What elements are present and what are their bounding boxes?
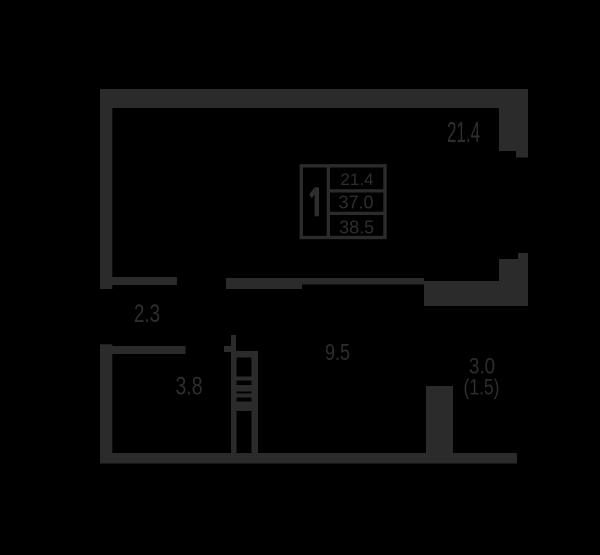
- svg-text:37.0: 37.0: [338, 192, 373, 212]
- svg-text:38.5: 38.5: [339, 217, 374, 237]
- svg-text:9.5: 9.5: [325, 339, 350, 365]
- svg-text:21.4: 21.4: [447, 117, 480, 149]
- svg-text:21.4: 21.4: [340, 170, 373, 189]
- svg-text:(1.5): (1.5): [464, 375, 500, 400]
- svg-text:2.3: 2.3: [134, 301, 160, 328]
- svg-text:3.8: 3.8: [176, 374, 203, 401]
